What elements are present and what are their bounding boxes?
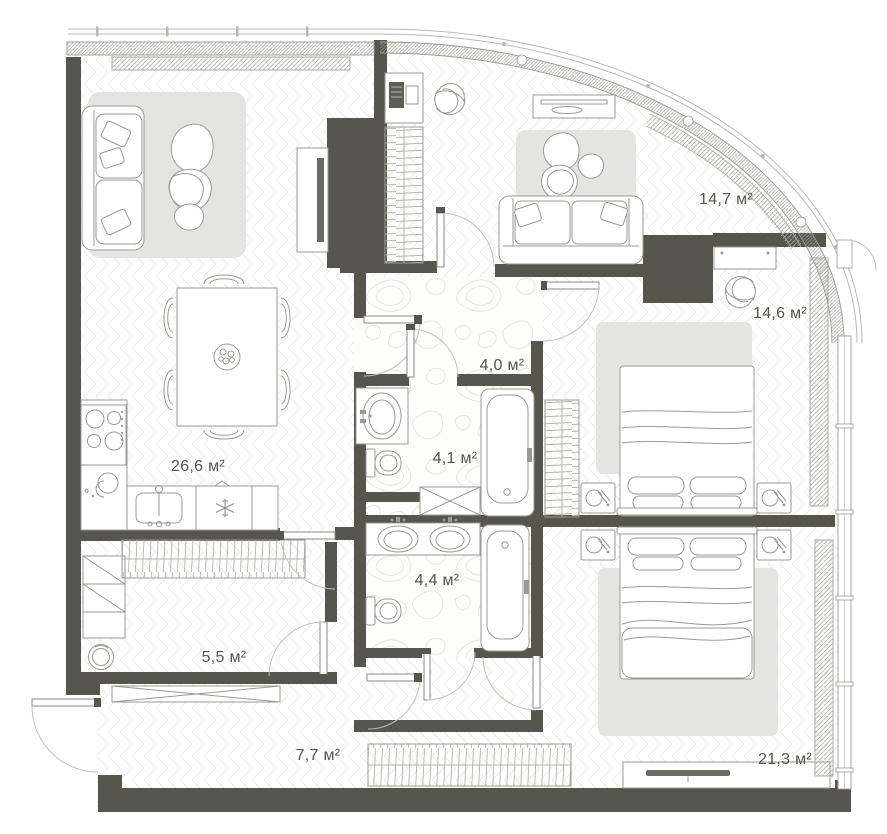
balcony-door-icon bbox=[837, 240, 876, 270]
window-band-top bbox=[67, 42, 374, 55]
double-sink-icon bbox=[366, 517, 480, 555]
lounge-sofa-icon bbox=[499, 196, 643, 264]
wardrobe-icon bbox=[368, 744, 571, 786]
bathtub-icon bbox=[481, 389, 534, 516]
room-area-label-hallway: 7,7 м² bbox=[296, 747, 341, 765]
bed-icon bbox=[617, 366, 757, 516]
nightstand-lamp-icon bbox=[581, 530, 615, 560]
desk-icon bbox=[385, 73, 423, 123]
radiator-icon bbox=[112, 57, 350, 70]
window-band-right bbox=[836, 336, 853, 789]
toilet-icon bbox=[366, 449, 401, 477]
shower-duct-icon bbox=[420, 487, 480, 515]
radiator-icon bbox=[810, 258, 828, 506]
room-area-label-bedroom2: 14,6 м² bbox=[753, 305, 807, 323]
outside-area bbox=[0, 688, 97, 834]
wardrobe-icon bbox=[545, 400, 579, 517]
room-area-label-living-kitchen: 26,6 м² bbox=[171, 458, 225, 476]
nightstand-lamp-icon bbox=[757, 530, 791, 560]
wall-console-icon bbox=[533, 95, 615, 118]
nightstand-lamp-icon bbox=[757, 483, 791, 513]
radiator-icon bbox=[815, 540, 833, 776]
room-area-label-bathroom2: 4,4 м² bbox=[415, 572, 460, 590]
toilet-icon bbox=[366, 597, 401, 625]
room-area-label-bathroom1: 4,1 м² bbox=[433, 450, 478, 468]
room-area-label-lounge: 14,7 м² bbox=[699, 191, 753, 209]
tv-console-icon bbox=[297, 148, 328, 252]
washing-machine-icon bbox=[89, 645, 114, 670]
sliding-wardrobe-icon bbox=[112, 686, 280, 702]
shelf-cabinet-icon bbox=[83, 556, 125, 638]
floor-plan-drawing bbox=[0, 0, 887, 834]
bed-icon bbox=[617, 527, 757, 679]
dining-table-icon bbox=[164, 275, 290, 439]
bathroom-sink-icon bbox=[356, 388, 408, 444]
floor-plan-stage: 26,6 м² 14,7 м² 14,6 м² 4,0 м² 4,1 м² 4,… bbox=[0, 0, 887, 834]
room-area-label-master: 21,3 м² bbox=[758, 751, 812, 769]
bathtub-icon bbox=[481, 525, 529, 651]
desk-icon bbox=[714, 247, 776, 269]
nightstand-lamp-icon bbox=[581, 483, 615, 513]
sofa-icon bbox=[82, 106, 144, 250]
room-area-label-corridor: 4,0 м² bbox=[480, 357, 525, 375]
room-area-label-dressing: 5,5 м² bbox=[202, 649, 247, 667]
wardrobe-icon bbox=[122, 540, 305, 578]
